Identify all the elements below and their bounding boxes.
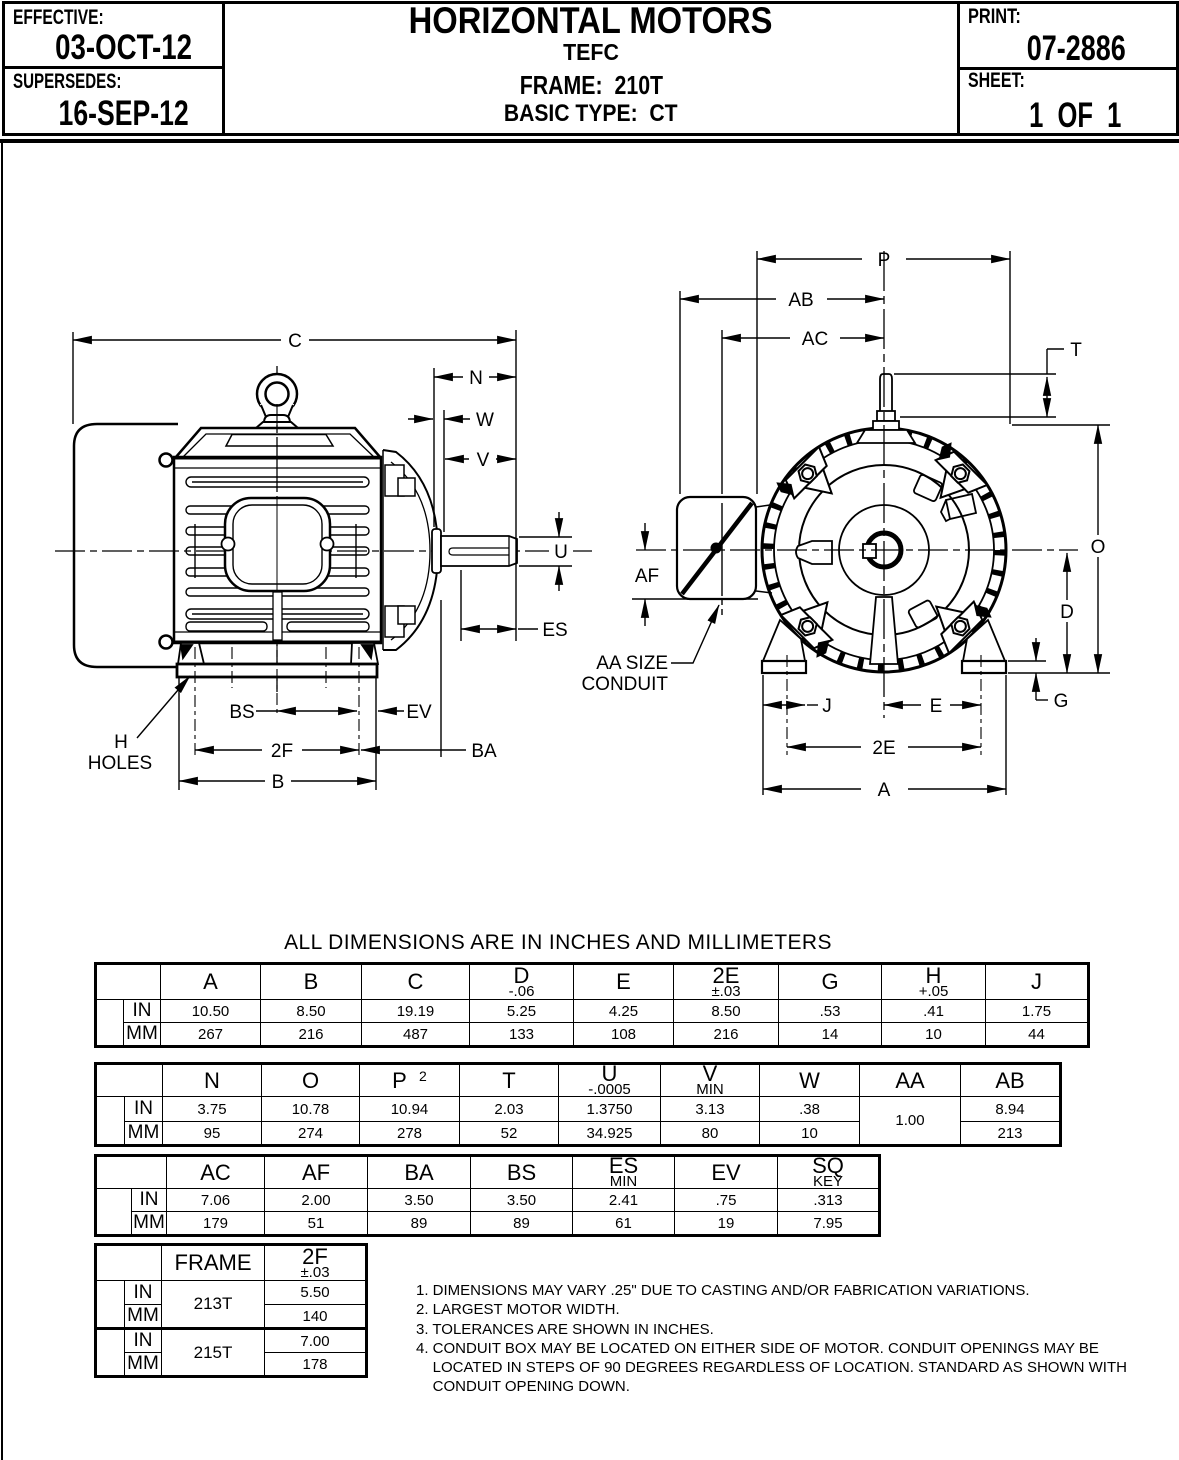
svg-text:BA: BA: [471, 741, 497, 762]
svg-text:G: G: [1054, 691, 1069, 712]
svg-text:U: U: [554, 542, 568, 563]
svg-text:V: V: [477, 450, 490, 471]
svg-text:P: P: [878, 250, 891, 271]
svg-text:AF: AF: [635, 566, 659, 587]
svg-text:2E: 2E: [872, 738, 895, 759]
svg-text:D: D: [1060, 602, 1074, 623]
svg-text:C: C: [288, 331, 302, 352]
svg-text:HOLES: HOLES: [88, 753, 152, 774]
svg-text:H: H: [114, 732, 128, 753]
svg-text:AA SIZE: AA SIZE: [596, 653, 668, 674]
svg-text:A: A: [878, 780, 891, 801]
svg-text:2F: 2F: [271, 741, 293, 762]
svg-text:AC: AC: [802, 329, 828, 350]
svg-text:EV: EV: [406, 702, 432, 723]
svg-text:B: B: [272, 772, 285, 793]
svg-text:E: E: [930, 696, 943, 717]
svg-text:T: T: [1070, 340, 1082, 361]
svg-text:O: O: [1091, 537, 1106, 558]
svg-text:W: W: [476, 410, 494, 431]
svg-text:CONDUIT: CONDUIT: [581, 674, 668, 695]
svg-text:J: J: [822, 696, 832, 717]
svg-text:BS: BS: [229, 702, 254, 723]
svg-text:AB: AB: [788, 290, 813, 311]
svg-text:N: N: [469, 368, 483, 389]
svg-text:ES: ES: [542, 620, 567, 641]
